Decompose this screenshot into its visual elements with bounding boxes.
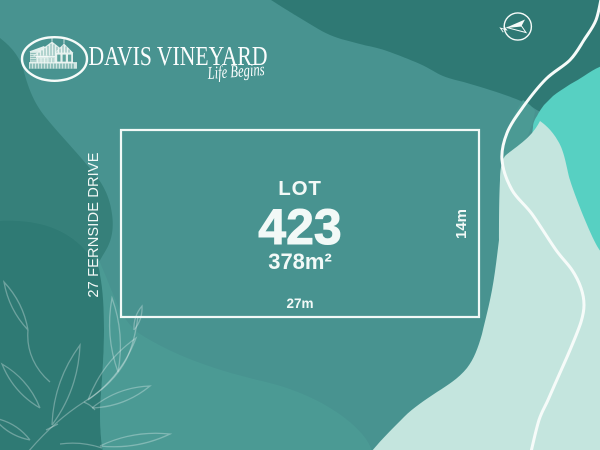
svg-text:Life Begins: Life Begins xyxy=(206,59,265,83)
svg-text:LOT: LOT xyxy=(278,177,321,200)
svg-text:27m: 27m xyxy=(286,296,313,311)
svg-text:378m²: 378m² xyxy=(268,249,332,274)
svg-text:14m: 14m xyxy=(453,209,470,239)
svg-text:27 FERNSIDE DRIVE: 27 FERNSIDE DRIVE xyxy=(86,152,102,297)
svg-text:423: 423 xyxy=(258,199,341,255)
